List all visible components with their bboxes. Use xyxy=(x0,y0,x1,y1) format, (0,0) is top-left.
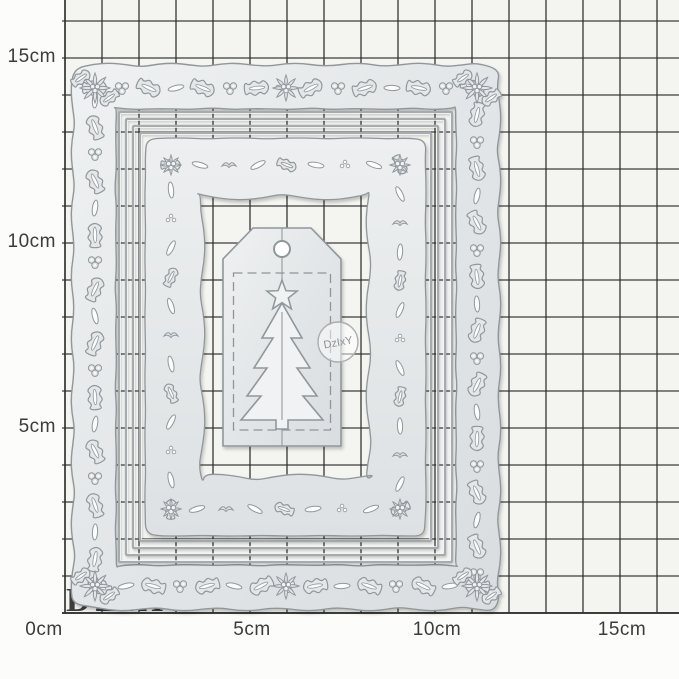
photo-canvas: DZIXY DzIxY xyxy=(0,0,679,679)
ruler-label-left-10cm: 10cm xyxy=(2,231,56,253)
cut-slot-icon xyxy=(384,85,400,91)
product-photo-stage: DZIXY DzIxY 15cm 10cm 5cm 0cm 5cm 10cm 1… xyxy=(0,0,679,679)
ruler-label-bottom-0cm: 0cm xyxy=(12,619,76,641)
ruler-label-bottom-15cm: 15cm xyxy=(590,619,654,641)
tag-hole xyxy=(274,241,290,257)
ruler-label-bottom-5cm: 5cm xyxy=(220,619,284,641)
cut-slot-icon xyxy=(92,524,98,540)
cut-slot-icon xyxy=(474,296,480,312)
ruler-label-bottom-10cm: 10cm xyxy=(405,619,469,641)
poinsettia-icon xyxy=(390,155,410,175)
watermark-badge: DzIxY xyxy=(318,322,358,362)
poinsettia-icon xyxy=(390,499,410,519)
poinsettia-icon xyxy=(161,499,181,519)
cut-slot-icon xyxy=(397,418,403,434)
poinsettia-icon xyxy=(273,573,299,599)
ruler-label-left-5cm: 5cm xyxy=(2,416,56,438)
cut-slot-icon xyxy=(334,583,350,589)
poinsettia-icon xyxy=(161,155,181,175)
die-set xyxy=(69,63,503,610)
ruler-label-left-15cm: 15cm xyxy=(2,46,56,68)
poinsettia-icon xyxy=(273,75,299,101)
